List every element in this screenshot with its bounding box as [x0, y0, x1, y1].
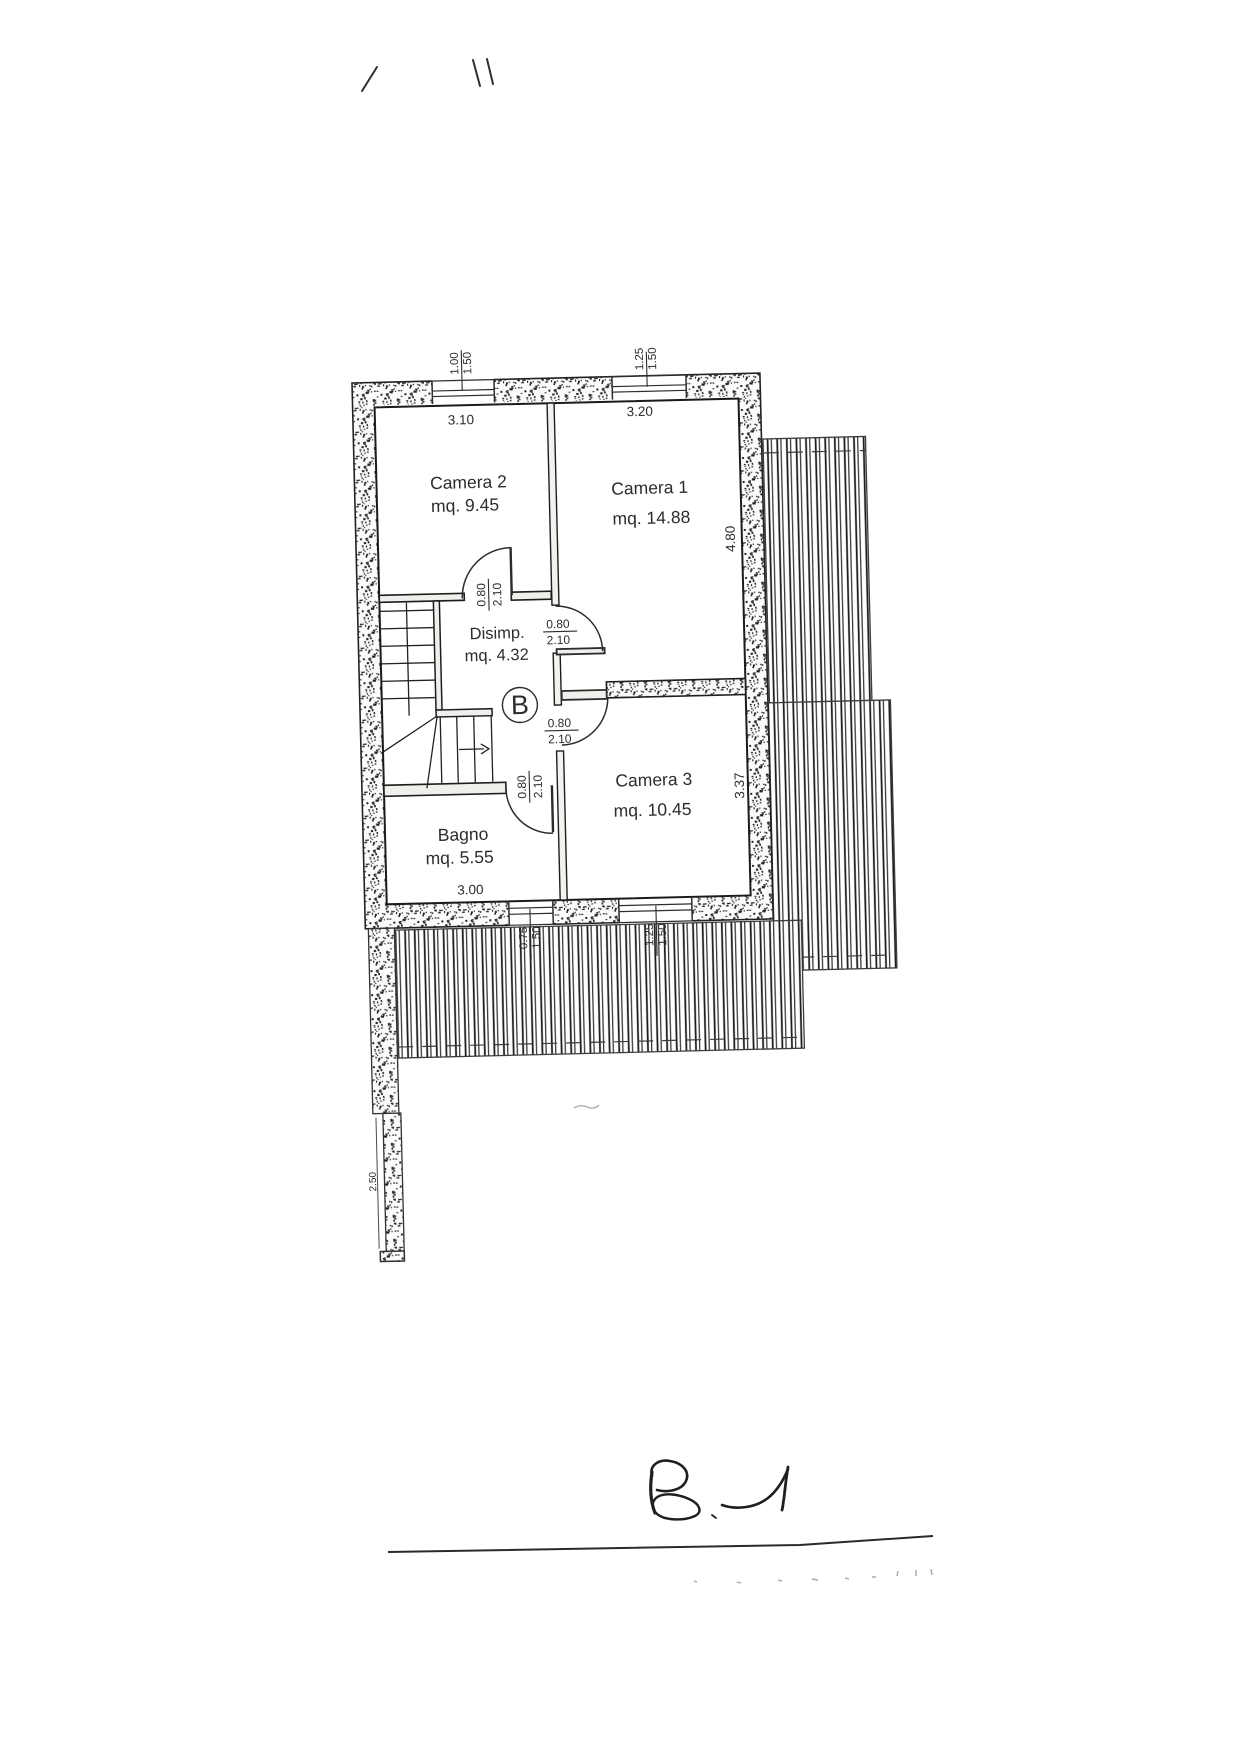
svg-text:2.10: 2.10: [548, 732, 572, 747]
svg-text:1.50: 1.50: [531, 926, 544, 949]
svg-text:3.20: 3.20: [626, 404, 653, 420]
svg-text:mq. 5.55: mq. 5.55: [425, 847, 494, 869]
svg-text:2.10: 2.10: [546, 633, 570, 648]
svg-text:mq. 14.88: mq. 14.88: [612, 507, 690, 529]
svg-text:2.50: 2.50: [368, 1171, 379, 1191]
svg-text:4.80: 4.80: [723, 525, 739, 552]
svg-text:0.75: 0.75: [518, 927, 531, 950]
svg-text:2.10: 2.10: [490, 582, 505, 606]
svg-text:1.50: 1.50: [462, 352, 475, 375]
svg-text:1.25: 1.25: [644, 924, 657, 947]
svg-text:3.37: 3.37: [732, 772, 748, 799]
svg-text:Disimp.: Disimp.: [469, 624, 524, 643]
svg-text:0.80: 0.80: [548, 716, 572, 731]
svg-text:1.00: 1.00: [449, 352, 462, 375]
svg-text:mq. 9.45: mq. 9.45: [431, 494, 500, 516]
svg-text:1.50: 1.50: [657, 923, 670, 946]
svg-text:1.25: 1.25: [634, 348, 647, 371]
svg-text:Camera 2: Camera 2: [430, 471, 507, 493]
svg-text:0.80: 0.80: [515, 775, 530, 799]
svg-text:B: B: [511, 690, 530, 720]
svg-text:mq. 4.32: mq. 4.32: [464, 646, 529, 666]
svg-text:3.00: 3.00: [457, 882, 484, 898]
svg-text:2.10: 2.10: [531, 774, 546, 798]
svg-text:1.50: 1.50: [647, 347, 660, 370]
svg-text:mq. 10.45: mq. 10.45: [613, 799, 691, 821]
svg-text:3.10: 3.10: [448, 412, 475, 428]
svg-text:Camera 3: Camera 3: [615, 769, 692, 791]
svg-text:Bagno: Bagno: [438, 824, 489, 845]
svg-text:0.80: 0.80: [546, 617, 570, 632]
svg-text:Camera 1: Camera 1: [611, 477, 688, 499]
svg-text:0.80: 0.80: [474, 583, 489, 607]
